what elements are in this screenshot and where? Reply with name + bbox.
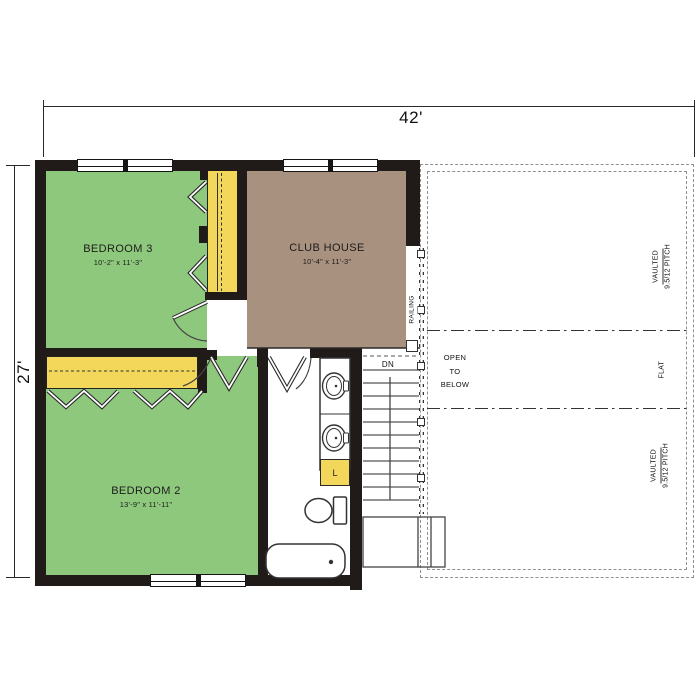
vaulted-annotation-bottom: VAULTED 9.5/12 PITCH — [650, 434, 671, 498]
bedroom2-closet-floor — [46, 356, 198, 389]
faucet — [344, 433, 349, 443]
wall-left — [35, 160, 46, 586]
wall-bath-stairs — [350, 348, 362, 590]
top-dimension-label: 42' — [385, 108, 437, 128]
vanity-double-sink — [320, 358, 350, 470]
room-name: BEDROOM 2 — [86, 485, 206, 498]
wall-closet-bottom — [205, 292, 247, 300]
window-mullion — [328, 159, 333, 172]
railing-post — [417, 306, 425, 314]
vaulted-annotation-top: VAULTED 9.5/12 PITCH — [652, 235, 673, 299]
wall-bedroom3-bottom — [35, 348, 207, 356]
bathtub — [266, 544, 345, 578]
wall-closet-clubhouse — [237, 165, 247, 300]
sink-basin — [323, 425, 346, 451]
ceiling-break-line-upper — [427, 330, 687, 331]
toilet — [305, 497, 347, 524]
door-bathroom — [269, 357, 311, 389]
railing-post — [417, 250, 425, 258]
railing-post — [417, 474, 425, 482]
wall-stub-closet-top — [200, 168, 208, 180]
flat-text: FLAT — [657, 361, 667, 378]
linen-label: L — [332, 468, 337, 478]
faucet — [344, 381, 349, 391]
tub-drain — [329, 560, 333, 564]
window-mullion — [196, 574, 201, 587]
pitch-text: 9.5/12 PITCH — [661, 443, 671, 488]
left-dimension-tick-top — [6, 165, 30, 166]
wall-stub-bedroom2-closet — [198, 348, 207, 393]
window-mullion — [123, 159, 128, 172]
window-bedroom2 — [150, 574, 246, 587]
room-size: 10'-2" x 11'-3" — [58, 256, 178, 269]
wall-doorstop — [199, 226, 207, 243]
wall-right-clubhouse — [406, 160, 420, 246]
open-line: BELOW — [423, 378, 487, 392]
bedroom2-label: BEDROOM 2 13'-9" x 11'-11" — [86, 485, 206, 511]
vaulted-text: VAULTED — [650, 447, 662, 484]
sink-basin — [323, 373, 346, 399]
open-to-below-label: OPEN TO BELOW — [423, 351, 487, 392]
left-dimension-label: 27' — [14, 348, 34, 396]
railing-end-post — [406, 340, 418, 352]
top-dimension-line — [43, 106, 695, 107]
top-dimension-tick-right — [694, 100, 695, 157]
room-name: CLUB HOUSE — [267, 242, 387, 255]
window-bedroom3 — [77, 159, 173, 172]
ceiling-break-line-lower — [427, 408, 687, 409]
room-size: 10'-4" x 11'-3" — [267, 255, 387, 268]
pitch-text: 9.5/12 PITCH — [663, 244, 673, 289]
open-line: OPEN — [423, 351, 487, 365]
bedroom3-label: BEDROOM 3 10'-2" x 11'-3" — [58, 243, 178, 269]
bedroom3-closet-floor — [207, 171, 237, 292]
wall-bedroom2-bath — [258, 348, 268, 575]
room-size: 13'-9" x 11'-11" — [86, 498, 206, 511]
flat-annotation: FLAT — [657, 350, 667, 390]
linen-closet: L — [320, 459, 350, 486]
left-dimension-tick-bottom — [6, 577, 30, 578]
open-line: TO — [423, 365, 487, 379]
railing-label: RAILING — [407, 288, 418, 332]
room-name: BEDROOM 3 — [58, 243, 178, 256]
top-dimension-tick-left — [43, 100, 44, 157]
vaulted-text: VAULTED — [652, 248, 664, 285]
wall-stub-bedroom2-door — [207, 350, 217, 360]
down-label: DN — [368, 358, 408, 372]
clubhouse-label: CLUB HOUSE 10'-4" x 11'-3" — [267, 242, 387, 268]
railing-post — [417, 418, 425, 426]
window-clubhouse — [283, 159, 378, 172]
floor-plan: 42' 27' — [0, 0, 700, 700]
